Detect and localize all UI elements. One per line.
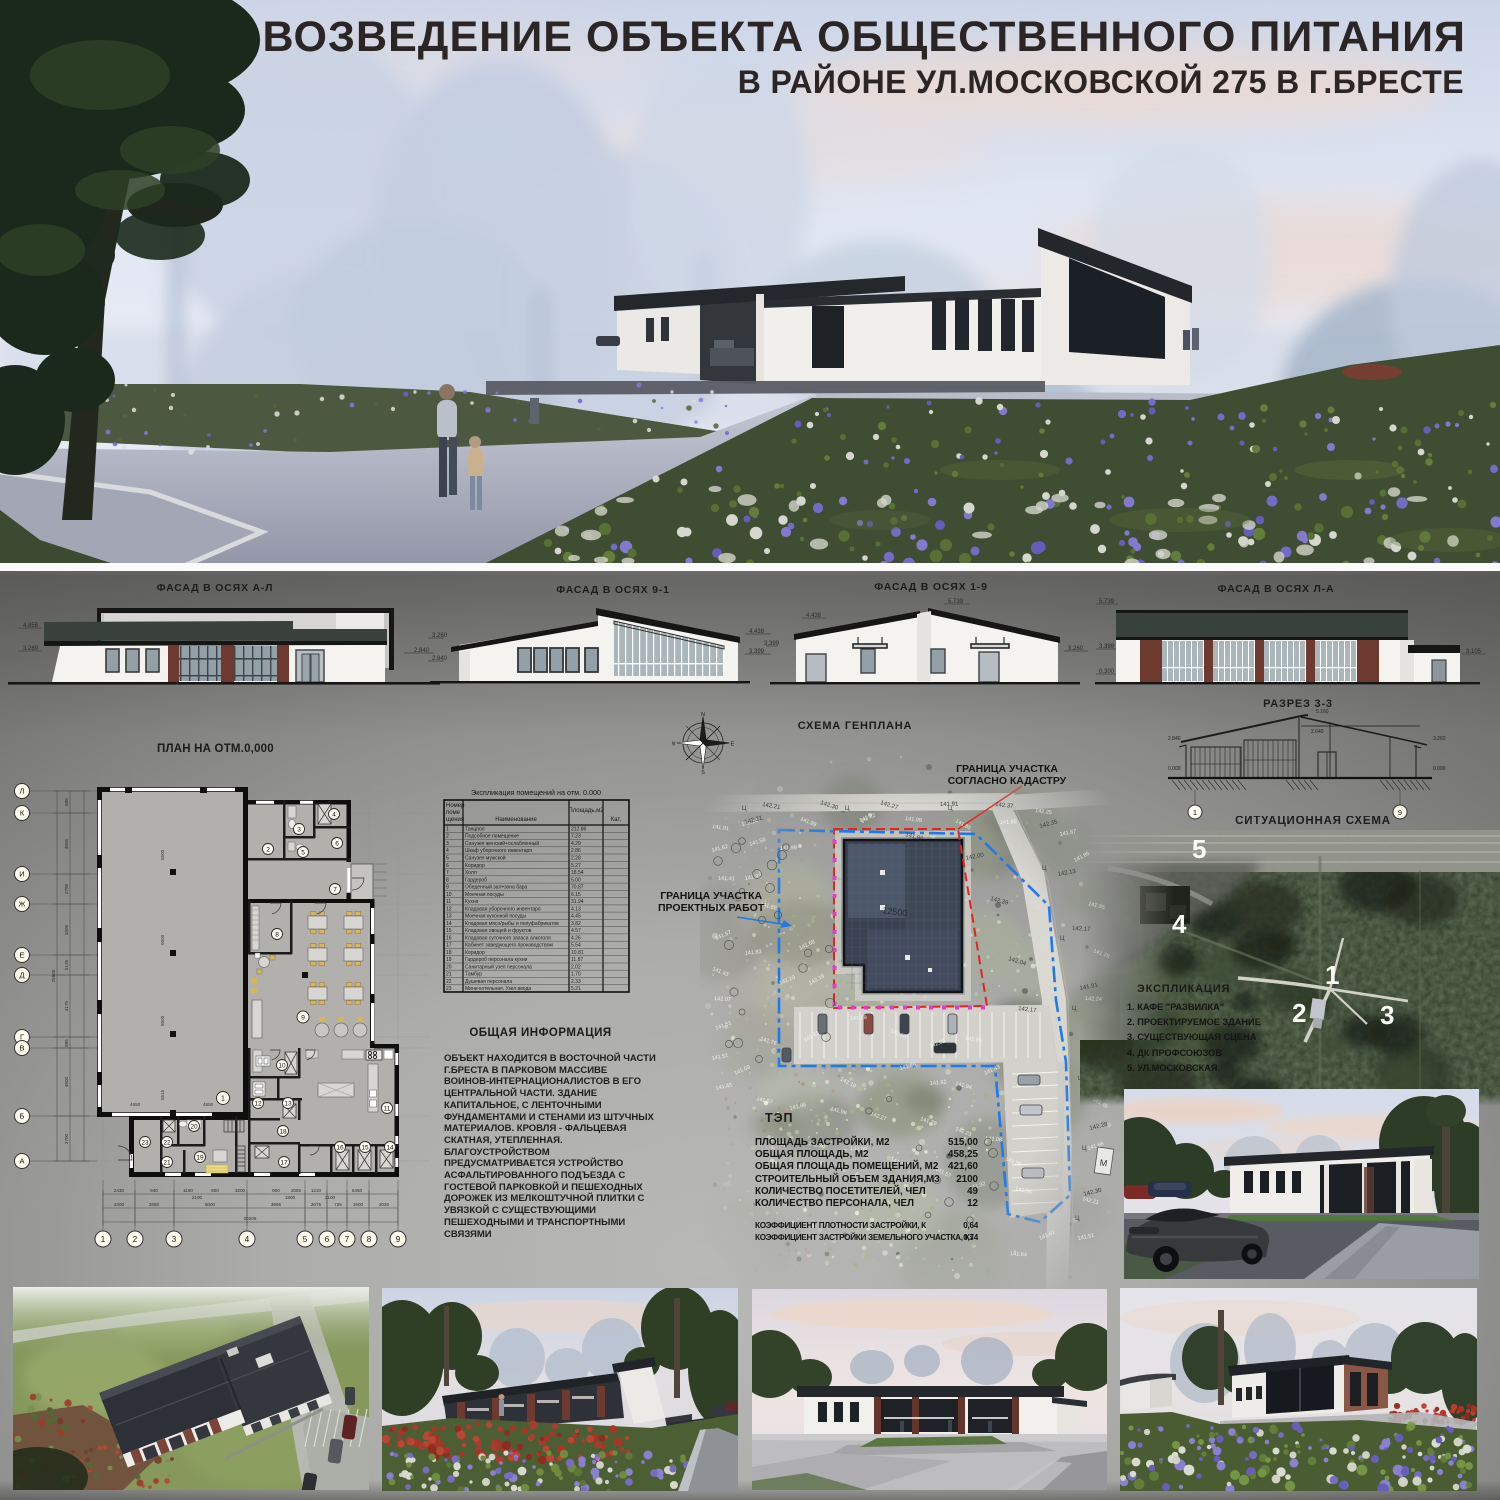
svg-text:940: 940: [150, 1188, 158, 1193]
svg-text:141.62: 141.62: [711, 844, 729, 854]
svg-text:8: 8: [446, 877, 449, 883]
svg-text:Гардероб персонала кухни: Гардероб персонала кухни: [465, 957, 528, 963]
svg-text:Санузел женский+ослабленный: Санузел женский+ослабленный: [465, 840, 539, 847]
svg-text:5: 5: [446, 856, 449, 862]
svg-text:3: 3: [446, 841, 449, 847]
svg-text:4.29: 4.29: [571, 841, 581, 847]
svg-text:В РАЙОНЕ УЛ.МОСКОВСКОЙ 275 В Г: В РАЙОНЕ УЛ.МОСКОВСКОЙ 275 В Г.БРЕСТЕ: [738, 64, 1464, 100]
svg-text:3: 3: [297, 826, 301, 833]
svg-text:Площадь,м2: Площадь,м2: [568, 808, 604, 814]
svg-text:10: 10: [446, 892, 452, 898]
svg-text:Д: Д: [19, 971, 24, 980]
svg-text:22: 22: [163, 1139, 171, 1146]
svg-text:20: 20: [190, 1123, 198, 1130]
svg-text:725: 725: [334, 1202, 342, 1207]
svg-text:ВОЗВЕДЕНИЕ ОБЪЕКТА ОБЩЕСТВЕННО: ВОЗВЕДЕНИЕ ОБЪЕКТА ОБЩЕСТВЕННОГО ПИТАНИЯ: [262, 13, 1466, 61]
svg-text:2300: 2300: [114, 1202, 125, 1207]
svg-text:5500: 5500: [160, 849, 165, 860]
svg-text:Подсобное помещение: Подсобное помещение: [465, 834, 519, 840]
svg-text:Ж: Ж: [19, 900, 26, 909]
svg-text:141.99: 141.99: [780, 845, 797, 852]
svg-text:8: 8: [367, 1235, 372, 1244]
svg-text:E: E: [731, 741, 734, 747]
svg-text:Санитарный узел персонала: Санитарный узел персонала: [465, 963, 532, 970]
svg-text:6: 6: [446, 863, 449, 869]
svg-text:5500: 5500: [160, 934, 165, 945]
svg-text:К: К: [20, 809, 25, 818]
svg-text:11.87: 11.87: [571, 957, 583, 963]
svg-text:3: 3: [172, 1235, 177, 1244]
svg-text:ФАСАД В ОСЯХ Л-А: ФАСАД В ОСЯХ Л-А: [1218, 583, 1335, 595]
svg-text:И: И: [19, 870, 24, 879]
svg-text:4: 4: [446, 848, 449, 854]
svg-text:1800: 1800: [285, 1195, 296, 1200]
svg-text:16: 16: [446, 935, 452, 941]
svg-text:1: 1: [446, 827, 449, 833]
svg-text:2.640: 2.640: [1311, 729, 1324, 735]
svg-text:Коридор: Коридор: [465, 950, 485, 956]
svg-text:141.89: 141.89: [850, 1015, 867, 1022]
svg-text:6: 6: [335, 840, 339, 847]
svg-text:ГРАНИЦА УЧАСТКА: ГРАНИЦА УЧАСТКА: [956, 763, 1058, 775]
svg-text:805: 805: [64, 798, 69, 806]
svg-text:Душевая персонала: Душевая персонала: [465, 979, 512, 985]
svg-text:12: 12: [446, 906, 452, 912]
svg-text:2055: 2055: [291, 1188, 302, 1193]
svg-text:19: 19: [196, 1154, 204, 1161]
svg-text:5500: 5500: [160, 1015, 165, 1026]
svg-text:25805: 25805: [51, 969, 56, 982]
svg-text:11: 11: [384, 1105, 391, 1112]
svg-text:9: 9: [446, 885, 449, 891]
svg-text:Шкаф уборочного инвентаря: Шкаф уборочного инвентаря: [465, 848, 532, 854]
svg-text:ПЛАН НА ОТМ.0,000: ПЛАН НА ОТМ.0,000: [157, 743, 274, 755]
svg-text:900: 900: [272, 1188, 280, 1193]
svg-text:895: 895: [64, 1039, 69, 1047]
svg-text:4: 4: [332, 811, 336, 818]
svg-text:14: 14: [446, 921, 452, 927]
svg-text:3305: 3305: [64, 924, 69, 935]
svg-text:2: 2: [266, 846, 270, 853]
svg-text:2430: 2430: [114, 1188, 125, 1193]
svg-text:142.28: 142.28: [1089, 1122, 1109, 1132]
svg-text:7: 7: [333, 886, 337, 893]
svg-text:2.02: 2.02: [571, 964, 581, 970]
svg-text:0.000: 0.000: [1168, 766, 1181, 772]
svg-text:8: 8: [275, 931, 279, 938]
svg-text:5000: 5000: [205, 1202, 216, 1207]
svg-text:13: 13: [284, 1100, 292, 1107]
svg-text:Коридор: Коридор: [465, 863, 485, 869]
svg-text:Ц: Ц: [1072, 1006, 1077, 1012]
svg-text:5: 5: [303, 1235, 308, 1244]
svg-text:7.23: 7.23: [571, 834, 581, 840]
svg-text:141.99: 141.99: [905, 816, 922, 824]
svg-text:Мини-котельная. Узел ввода: Мини-котельная. Узел ввода: [465, 986, 531, 992]
svg-text:900: 900: [211, 1188, 219, 1193]
svg-text:141.91: 141.91: [712, 824, 729, 832]
svg-text:Л: Л: [20, 787, 25, 796]
svg-text:9: 9: [301, 1014, 305, 1021]
svg-text:СХЕМА ГЕНПЛАНА: СХЕМА ГЕНПЛАНА: [798, 720, 913, 732]
svg-text:2650: 2650: [149, 1202, 160, 1207]
svg-text:Кладовая суточного запаса алко: Кладовая суточного запаса алкоголя: [465, 935, 551, 941]
svg-text:16: 16: [336, 1144, 344, 1151]
svg-text:23: 23: [446, 986, 452, 992]
svg-text:2.86: 2.86: [571, 848, 581, 854]
svg-text:Моечная кухонной посуды: Моечная кухонной посуды: [465, 913, 527, 920]
svg-text:19: 19: [446, 957, 452, 963]
svg-text:21: 21: [446, 972, 452, 978]
svg-text:W: W: [672, 741, 676, 747]
svg-text:4: 4: [1172, 909, 1187, 939]
svg-text:Наименование: Наименование: [495, 817, 537, 823]
svg-text:Тамбур: Тамбур: [465, 972, 482, 978]
svg-text:5: 5: [301, 849, 305, 856]
svg-text:31.94: 31.94: [571, 899, 584, 905]
svg-text:Кладовая овощей и фруктов: Кладовая овощей и фруктов: [465, 927, 532, 934]
svg-text:ФАСАД В ОСЯХ 1-9: ФАСАД В ОСЯХ 1-9: [874, 581, 987, 593]
svg-text:Кабинет заведующего производст: Кабинет заведующего производством: [465, 943, 553, 949]
svg-text:15: 15: [361, 1144, 369, 1151]
svg-text:Холл: Холл: [465, 870, 477, 876]
svg-text:Кухня: Кухня: [465, 899, 479, 905]
svg-text:141.58: 141.58: [749, 837, 767, 848]
svg-text:5.27: 5.27: [571, 863, 581, 869]
svg-text:СИТУАЦИОННАЯ СХЕМА: СИТУАЦИОННАЯ СХЕМА: [1235, 816, 1391, 827]
svg-text:17: 17: [446, 943, 452, 949]
svg-text:20: 20: [446, 964, 452, 970]
svg-text:5515: 5515: [160, 1089, 165, 1100]
svg-text:1210: 1210: [311, 1188, 322, 1193]
svg-text:5125: 5125: [64, 959, 69, 970]
svg-text:2100: 2100: [325, 1195, 336, 1200]
svg-text:2075: 2075: [311, 1202, 322, 1207]
svg-text:5.160: 5.160: [1316, 709, 1329, 715]
svg-text:5.54: 5.54: [571, 943, 581, 949]
svg-text:1: 1: [1325, 960, 1339, 990]
svg-text:2100: 2100: [192, 1195, 203, 1200]
svg-text:18.54: 18.54: [571, 870, 584, 876]
svg-text:7: 7: [345, 1235, 350, 1244]
svg-text:поме: поме: [446, 810, 461, 816]
svg-text:4850: 4850: [130, 1102, 141, 1107]
svg-text:Ц: Ц: [948, 806, 953, 812]
svg-text:12: 12: [254, 1100, 262, 1107]
svg-text:Ц: Ц: [845, 806, 850, 812]
svg-text:23: 23: [141, 1139, 149, 1146]
svg-text:2: 2: [133, 1235, 138, 1244]
svg-text:СОГЛАСНО КАДАСТРУ: СОГЛАСНО КАДАСТРУ: [948, 775, 1067, 787]
svg-text:Ц: Ц: [1075, 1216, 1080, 1222]
svg-text:5: 5: [1192, 834, 1206, 864]
svg-text:В: В: [19, 1044, 24, 1053]
svg-text:ФАСАД В ОСЯХ А-Л: ФАСАД В ОСЯХ А-Л: [157, 582, 274, 594]
svg-text:1.70: 1.70: [571, 972, 581, 978]
svg-text:Обеденный зал+зона бара: Обеденный зал+зона бара: [465, 884, 528, 891]
svg-text:Кат.: Кат.: [611, 817, 622, 823]
svg-text:Моечная посуды: Моечная посуды: [465, 892, 504, 898]
svg-text:142.19: 142.19: [839, 1076, 857, 1089]
svg-text:70.87: 70.87: [571, 885, 584, 891]
svg-text:6: 6: [325, 1235, 330, 1244]
svg-text:2.840: 2.840: [1168, 736, 1181, 742]
svg-text:Ц: Ц: [1042, 866, 1047, 872]
svg-text:14: 14: [386, 1144, 394, 1151]
svg-text:2: 2: [446, 834, 449, 840]
svg-text:4850: 4850: [203, 1102, 214, 1107]
svg-text:3700: 3700: [64, 1133, 69, 1144]
svg-text:4.57: 4.57: [571, 928, 581, 934]
svg-text:ФАСАД В ОСЯХ 9-1: ФАСАД В ОСЯХ 9-1: [556, 584, 669, 596]
svg-text:4.13: 4.13: [571, 906, 581, 912]
svg-text:1: 1: [221, 1096, 225, 1103]
svg-text:1500: 1500: [353, 1202, 364, 1207]
svg-text:13: 13: [446, 914, 452, 920]
svg-text:Ц: Ц: [1060, 936, 1065, 942]
svg-text:6.15: 6.15: [571, 892, 581, 898]
svg-text:4.26: 4.26: [571, 935, 581, 941]
svg-text:Кладовая уборочного инвентаря: Кладовая уборочного инвентаря: [465, 906, 541, 912]
svg-text:3200: 3200: [235, 1188, 246, 1193]
svg-text:4175: 4175: [64, 1000, 69, 1011]
svg-text:22: 22: [446, 979, 452, 985]
svg-text:Экспликация помещений на отм.: Экспликация помещений на отм. 0.000: [471, 788, 601, 797]
svg-text:2795: 2795: [64, 883, 69, 894]
svg-text:18: 18: [446, 950, 452, 956]
svg-text:11: 11: [446, 899, 451, 905]
svg-text:1: 1: [101, 1235, 106, 1244]
svg-text:141.64: 141.64: [1010, 1251, 1027, 1258]
svg-text:141.45: 141.45: [715, 1082, 733, 1092]
svg-text:212.86: 212.86: [571, 827, 587, 833]
svg-text:2.28: 2.28: [571, 856, 581, 862]
svg-text:7: 7: [446, 870, 449, 876]
svg-text:4.45: 4.45: [571, 914, 581, 920]
svg-text:2: 2: [1292, 998, 1306, 1028]
svg-text:Кладовая мясо/рыбы и полуфабри: Кладовая мясо/рыбы и полуфабрикатов: [465, 921, 559, 927]
svg-text:А: А: [19, 1157, 24, 1166]
svg-text:Санузел мужской: Санузел мужской: [465, 855, 506, 862]
svg-text:S: S: [701, 770, 705, 774]
svg-text:3965: 3965: [271, 1202, 282, 1207]
svg-text:щения: щения: [446, 817, 464, 823]
svg-text:Гардероб: Гардероб: [465, 877, 487, 883]
svg-text:18: 18: [279, 1128, 287, 1135]
svg-text:15: 15: [446, 928, 452, 934]
svg-text:141.99: 141.99: [799, 816, 817, 828]
svg-text:1160: 1160: [183, 1188, 193, 1193]
svg-text:М: М: [1099, 1157, 1108, 1168]
svg-text:3.260: 3.260: [1433, 736, 1446, 742]
svg-text:4805: 4805: [64, 838, 69, 849]
svg-text:10: 10: [278, 1062, 286, 1069]
svg-text:6450: 6450: [352, 1188, 363, 1193]
svg-text:Номер: Номер: [446, 803, 465, 809]
svg-text:141.82: 141.82: [930, 1080, 947, 1087]
svg-text:Е: Е: [19, 951, 24, 960]
svg-text:3: 3: [1380, 1000, 1394, 1030]
svg-text:Ц: Ц: [742, 806, 747, 812]
svg-text:141.88: 141.88: [1000, 819, 1017, 826]
svg-text:20205: 20205: [244, 1216, 257, 1221]
svg-text:3.82: 3.82: [571, 921, 581, 927]
svg-text:21: 21: [163, 1159, 171, 1166]
svg-text:17: 17: [280, 1159, 288, 1166]
svg-text:4: 4: [245, 1235, 250, 1244]
svg-text:Б: Б: [20, 1112, 25, 1121]
svg-text:2.33: 2.33: [571, 979, 581, 985]
svg-text:4600: 4600: [64, 1076, 69, 1087]
svg-text:Ц: Ц: [1082, 1146, 1087, 1152]
svg-text:Танцпол: Танцпол: [465, 827, 485, 833]
svg-text:5.00: 5.00: [571, 877, 581, 883]
svg-text:2020: 2020: [379, 1202, 390, 1207]
svg-text:142.07: 142.07: [714, 996, 731, 1003]
svg-text:10.81: 10.81: [571, 950, 584, 956]
svg-text:141.41: 141.41: [718, 876, 735, 882]
svg-text:N: N: [701, 712, 705, 718]
svg-text:5.21: 5.21: [571, 986, 581, 992]
svg-text:0.000: 0.000: [1433, 766, 1446, 772]
svg-text:9: 9: [396, 1235, 401, 1244]
